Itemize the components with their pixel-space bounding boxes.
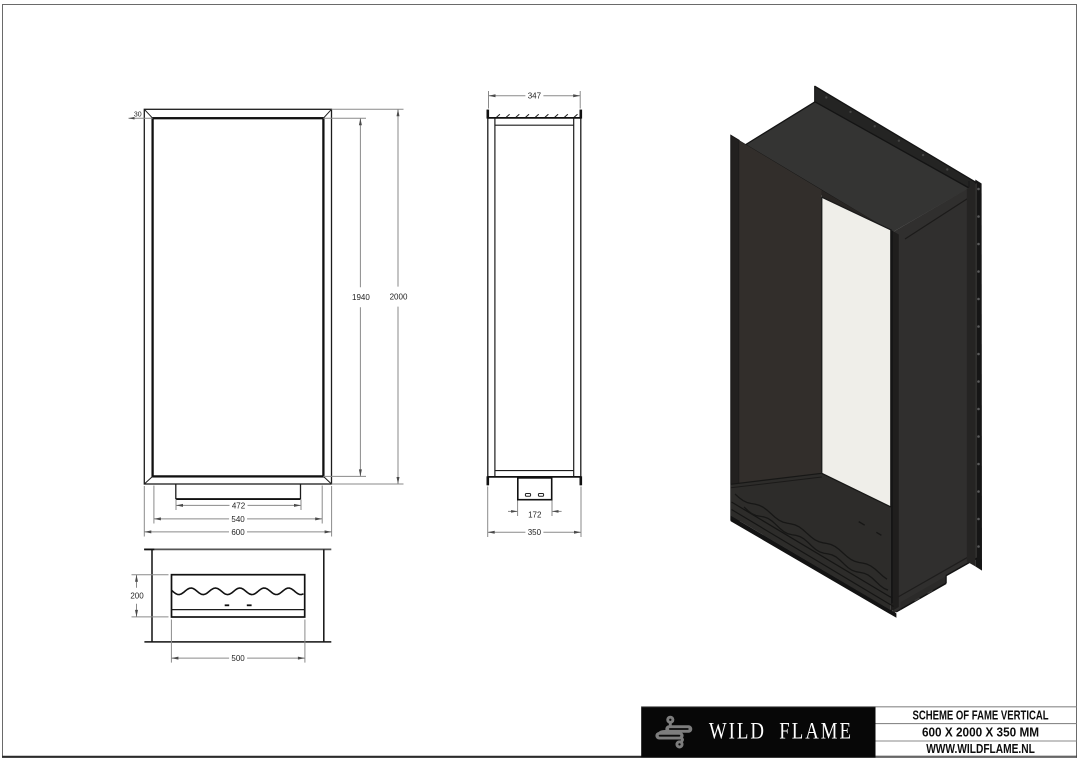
svg-text:350: 350: [528, 528, 542, 537]
svg-text:540: 540: [231, 515, 245, 524]
svg-text:500: 500: [231, 654, 245, 663]
svg-text:SCHEME OF FAME VERTICAL: SCHEME OF FAME VERTICAL: [912, 709, 1048, 723]
svg-text:30: 30: [134, 112, 142, 119]
svg-text:172: 172: [528, 511, 542, 520]
svg-text:200: 200: [130, 592, 144, 601]
svg-text:472: 472: [232, 501, 246, 510]
svg-text:600 X 2000 X 350 MM: 600 X 2000 X 350 MM: [922, 725, 1039, 740]
svg-text:WILD FLAME: WILD FLAME: [709, 717, 853, 744]
svg-text:600: 600: [231, 528, 245, 537]
svg-text:1940: 1940: [352, 293, 370, 302]
svg-text:2000: 2000: [390, 293, 408, 302]
svg-text:WWW.WILDFLAME.NL: WWW.WILDFLAME.NL: [926, 742, 1035, 756]
svg-text:347: 347: [528, 92, 542, 101]
